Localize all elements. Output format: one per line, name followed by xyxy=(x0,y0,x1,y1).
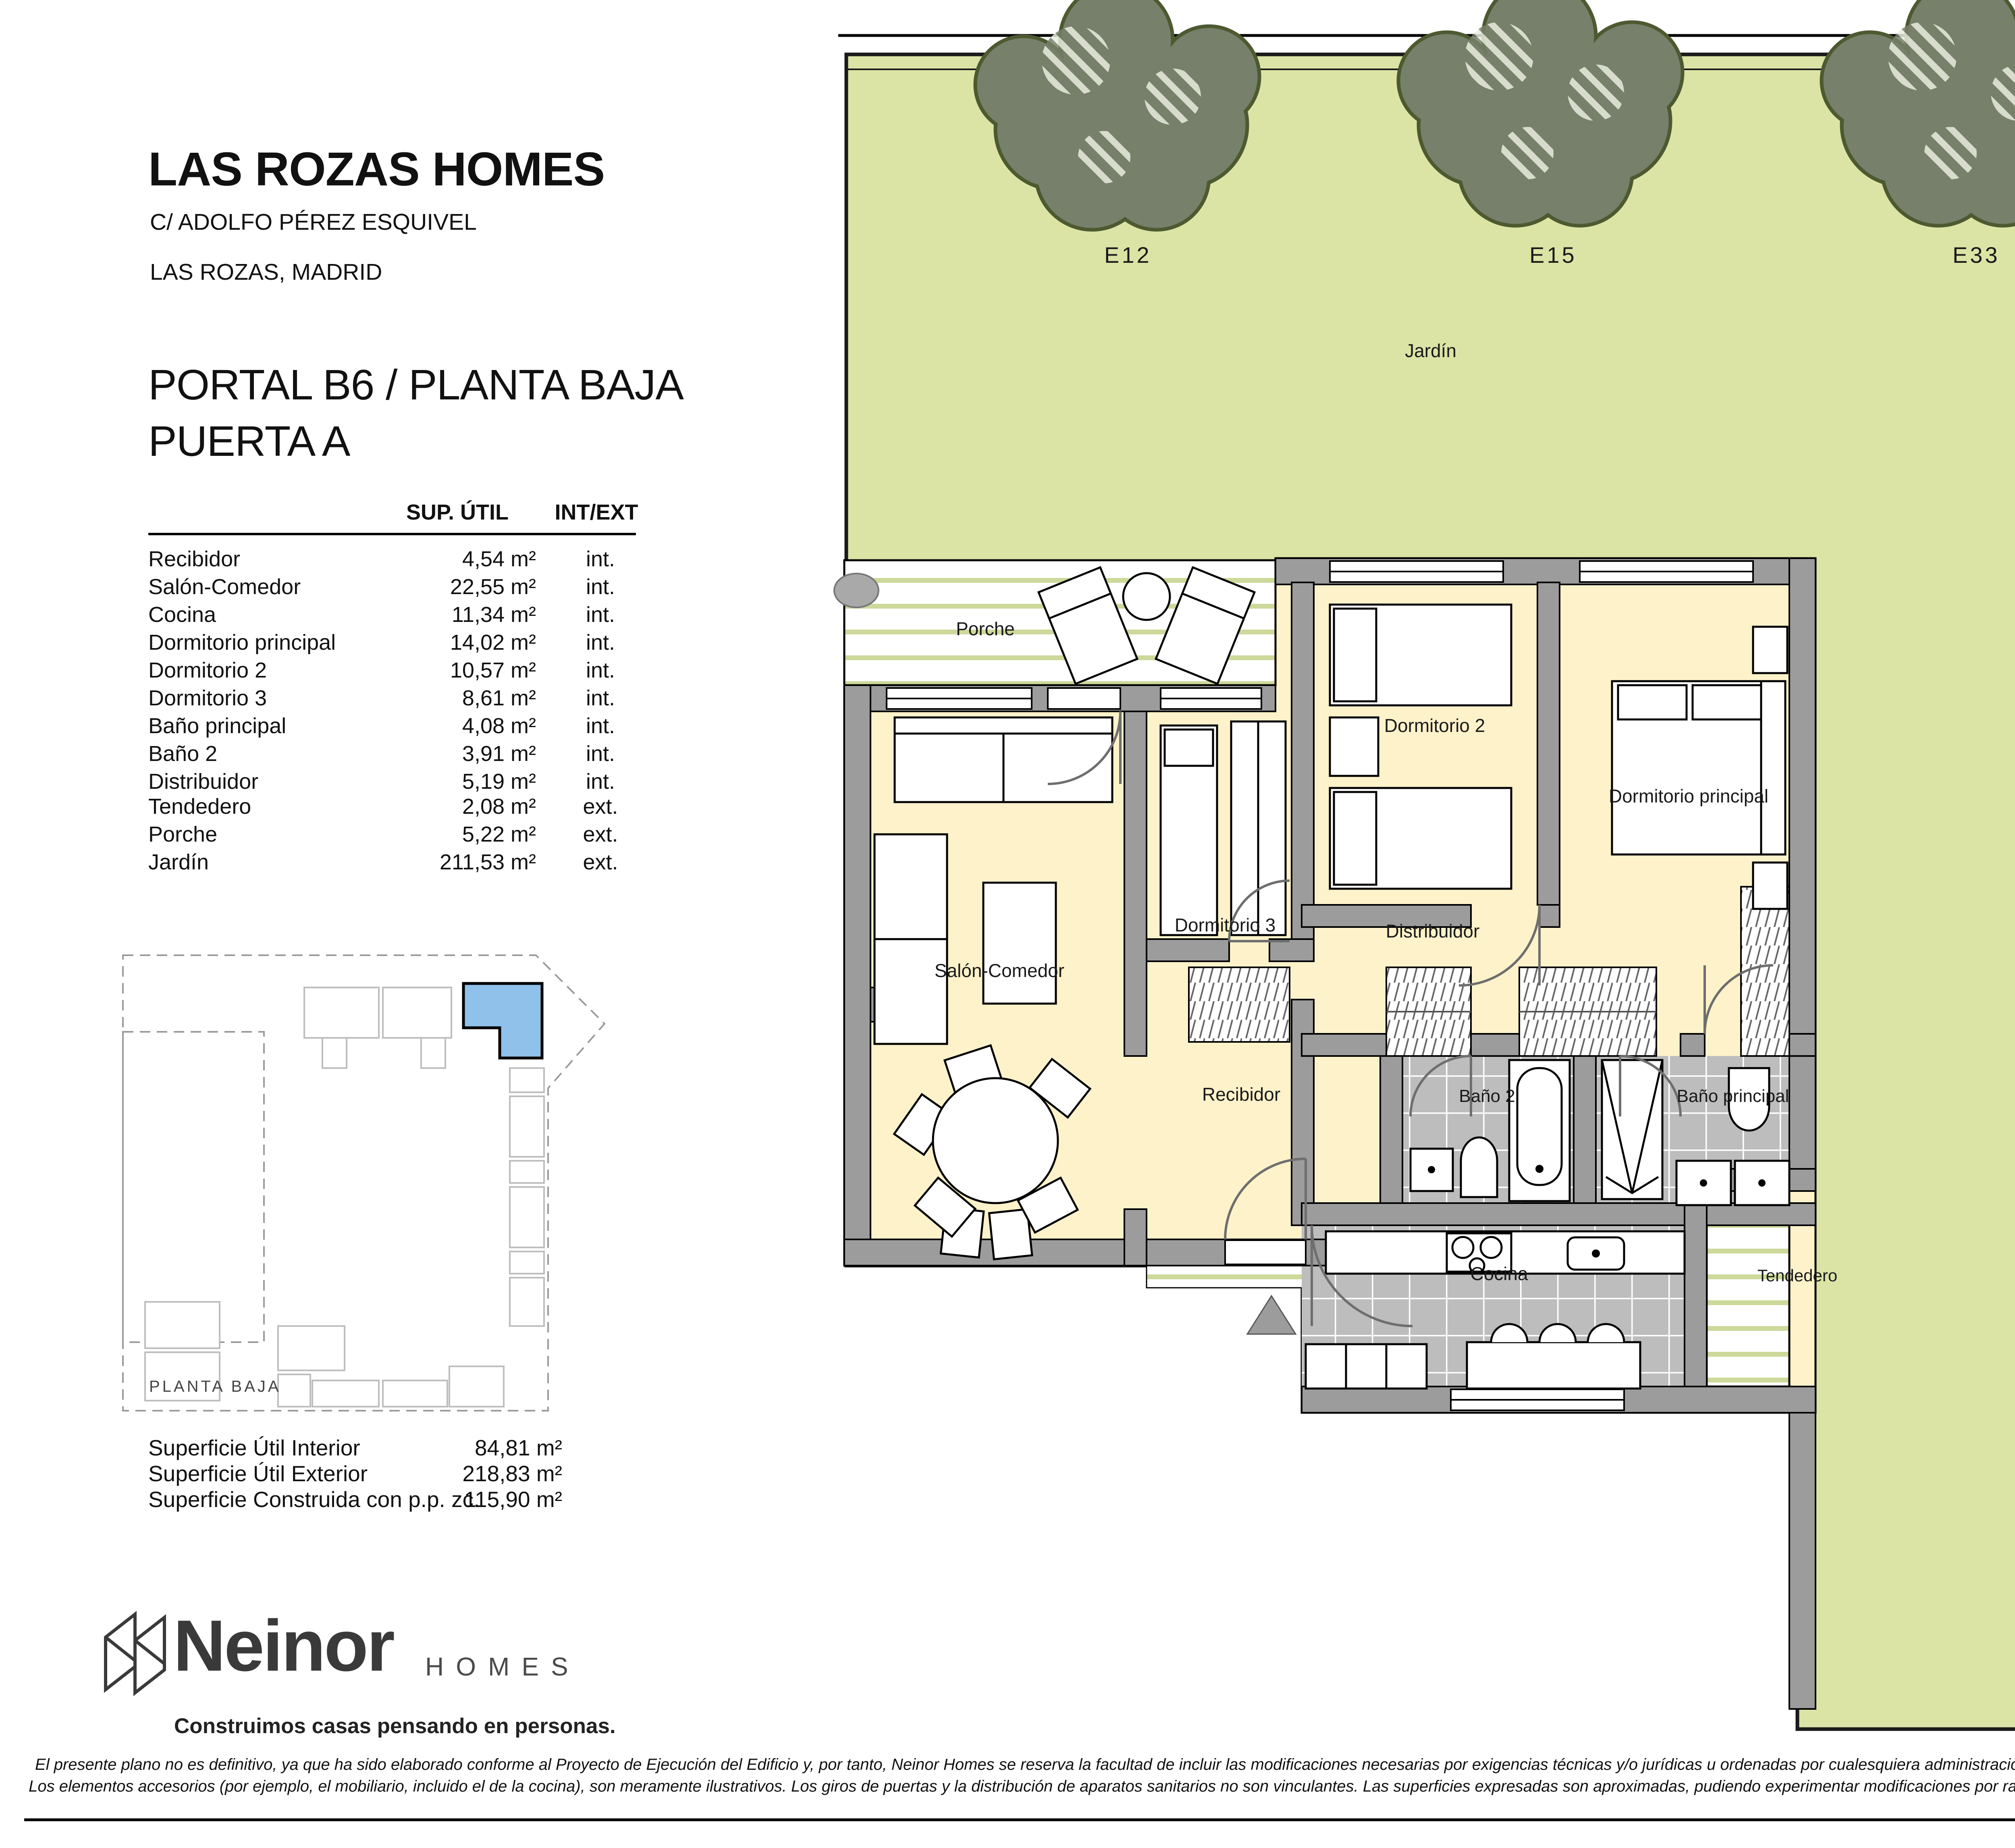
table-row-type: int. xyxy=(552,574,649,599)
summary-label: Superficie Útil Exterior xyxy=(148,1461,368,1486)
table-row-name: Jardín xyxy=(148,850,209,875)
table-row-name: Distribuidor xyxy=(148,769,258,794)
table-row-area: 11,34 m² xyxy=(363,602,536,627)
table-row-type: ext. xyxy=(552,850,649,875)
room-label-dormitorio-principal: Dormitorio principal xyxy=(1609,785,1768,807)
table-row-type: ext. xyxy=(552,822,649,847)
table-row-type: int. xyxy=(552,686,649,711)
table-row-name: Baño 2 xyxy=(148,741,217,766)
address-line2: LAS ROZAS, MADRID xyxy=(150,259,382,285)
table-row-area: 5,19 m² xyxy=(363,769,536,794)
table-row-name: Dormitorio 3 xyxy=(148,686,267,711)
table-row-type: ext. xyxy=(552,794,649,819)
entrance-arrow xyxy=(1247,1296,1296,1334)
unit-title-line1: PORTAL B6 / PLANTA BAJA xyxy=(148,361,683,410)
table-row-type: int. xyxy=(552,630,649,655)
room-label-recibidor: Recibidor xyxy=(1202,1083,1280,1105)
plan-sheet: LAS ROZAS HOMES C/ ADOLFO PÉREZ ESQUIVEL… xyxy=(0,0,2015,1848)
table-row-type: int. xyxy=(552,769,649,794)
table-row-name: Baño principal xyxy=(148,713,286,738)
table-row-name: Tendedero xyxy=(148,794,251,819)
table-row-type: int. xyxy=(552,547,649,572)
summary-value: 115,90 m² xyxy=(403,1486,562,1512)
room-label-dormitorio3: Dormitorio 3 xyxy=(1175,914,1276,936)
areas-col-header-int-ext: INT/EXT xyxy=(536,500,657,525)
unit-highlight xyxy=(463,983,542,1058)
table-row-area: 8,61 m² xyxy=(363,686,536,711)
room-label-dormitorio2: Dormitorio 2 xyxy=(1384,715,1485,736)
summary-value: 84,81 m² xyxy=(403,1435,562,1461)
room-label-distribuidor: Distribuidor xyxy=(1386,920,1480,942)
room-label-porche: Porche xyxy=(956,618,1015,640)
table-row-area: 211,53 m² xyxy=(363,850,536,875)
room-label-bano-principal: Baño principal xyxy=(1677,1086,1789,1106)
table-row-name: Dormitorio 2 xyxy=(148,658,267,683)
project-title: LAS ROZAS HOMES xyxy=(148,142,604,197)
unit-title-line2: PUERTA A xyxy=(148,417,350,466)
brand-tagline: Construimos casas pensando en personas. xyxy=(174,1714,616,1738)
areas-col-header-sup-util: SUP. ÚTIL xyxy=(383,500,532,525)
table-row-type: int. xyxy=(552,713,649,738)
table-row-name: Cocina xyxy=(148,602,216,627)
table-row-area: 5,22 m² xyxy=(363,822,536,847)
summary-label: Superficie Útil Interior xyxy=(148,1435,360,1461)
table-row-name: Dormitorio principal xyxy=(148,630,336,655)
table-row-type: int. xyxy=(552,658,649,683)
room-label-jardin-top: Jardín xyxy=(1405,340,1456,362)
table-row-area: 4,54 m² xyxy=(363,547,536,572)
disclaimer-line1: El presente plano no es definitivo, ya q… xyxy=(0,1756,2015,1774)
summary-value: 218,83 m² xyxy=(403,1461,562,1486)
table-row-type: int. xyxy=(552,602,649,627)
table-row-type: int. xyxy=(552,741,649,766)
disclaimer-line2: Los elementos accesorios (por ejemplo, e… xyxy=(0,1777,2015,1796)
brand-sub: HOMES xyxy=(425,1652,580,1682)
key-plan-label: PLANTA BAJA xyxy=(149,1378,281,1396)
brand-logo-icon xyxy=(106,1614,164,1693)
table-row-area: 2,08 m² xyxy=(363,794,536,819)
room-label-salon: Salón-Comedor xyxy=(935,960,1064,981)
tree-label-e33: E33 xyxy=(1953,242,2000,268)
room-label-bano2: Baño 2 xyxy=(1459,1086,1515,1106)
tree-label-e12: E12 xyxy=(1104,242,1152,268)
table-row-area: 14,02 m² xyxy=(363,630,536,655)
table-row-area: 4,08 m² xyxy=(363,713,536,738)
table-row-name: Recibidor xyxy=(148,547,240,572)
address-line1: C/ ADOLFO PÉREZ ESQUIVEL xyxy=(150,209,477,235)
table-row-area: 22,55 m² xyxy=(363,574,536,599)
table-row-name: Porche xyxy=(148,822,217,847)
key-plan xyxy=(123,955,604,1411)
table-row-name: Salón-Comedor xyxy=(148,574,301,599)
room-label-cocina: Cocina xyxy=(1470,1263,1528,1285)
room-label-tendedero: Tendedero xyxy=(1757,1266,1838,1285)
tree-label-e15: E15 xyxy=(1529,242,1577,268)
brand-name: Neinor xyxy=(173,1604,393,1688)
table-rule xyxy=(148,533,636,535)
table-row-area: 10,57 m² xyxy=(363,658,536,683)
table-row-area: 3,91 m² xyxy=(363,741,536,766)
